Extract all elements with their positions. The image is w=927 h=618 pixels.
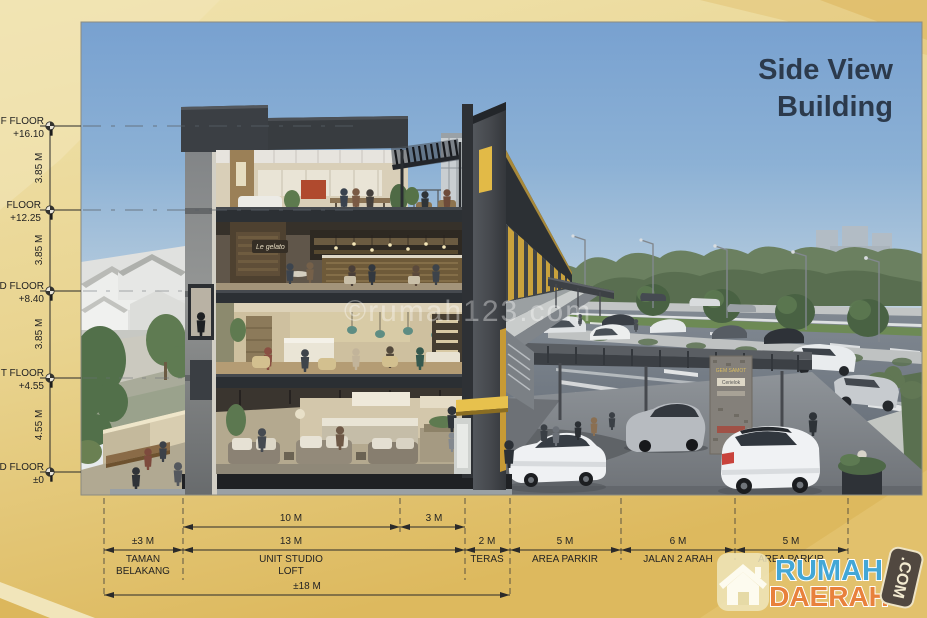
svg-text:D FLOOR: D FLOOR <box>0 281 44 292</box>
svg-text:DAERAH: DAERAH <box>769 581 889 612</box>
svg-text:±0: ±0 <box>33 475 44 486</box>
svg-text:3 M: 3 M <box>426 513 443 524</box>
svg-text:3.85 M: 3.85 M <box>34 319 45 350</box>
svg-text:TAMAN: TAMAN <box>126 554 160 565</box>
svg-text:Cerielok: Cerielok <box>722 380 741 386</box>
svg-text:F FLOOR: F FLOOR <box>1 116 44 127</box>
svg-text:±3 M: ±3 M <box>132 536 154 547</box>
svg-text:5 M: 5 M <box>557 536 574 547</box>
svg-text:10 M: 10 M <box>280 513 302 524</box>
svg-text:+4.55: +4.55 <box>19 381 45 392</box>
svg-text:±18 M: ±18 M <box>293 581 321 592</box>
svg-text:3.85 M: 3.85 M <box>34 153 45 184</box>
svg-text:AREA PARKIR: AREA PARKIR <box>532 554 598 565</box>
svg-text:+16.10: +16.10 <box>13 129 44 140</box>
svg-text:JALAN 2 ARAH: JALAN 2 ARAH <box>643 554 712 565</box>
svg-text:3.85 M: 3.85 M <box>34 235 45 266</box>
svg-text:LOFT: LOFT <box>278 566 304 577</box>
svg-text:GEM SAMOT: GEM SAMOT <box>716 368 747 374</box>
svg-text:13 M: 13 M <box>280 536 302 547</box>
svg-text:2 M: 2 M <box>479 536 496 547</box>
svg-text:5 M: 5 M <box>783 536 800 547</box>
svg-text:D FLOOR: D FLOOR <box>0 462 44 473</box>
svg-text:©rumah123.com: ©rumah123.com <box>344 295 592 328</box>
svg-text:Building: Building <box>777 91 893 123</box>
svg-text:Le gelato: Le gelato <box>256 244 285 251</box>
svg-text:+12.25: +12.25 <box>10 213 41 224</box>
svg-text:UNIT STUDIO: UNIT STUDIO <box>259 554 323 565</box>
svg-text:+8.40: +8.40 <box>19 294 45 305</box>
svg-text:Side View: Side View <box>758 54 893 86</box>
svg-text:4.55 M: 4.55 M <box>34 410 45 441</box>
svg-text:BELAKANG: BELAKANG <box>116 566 170 577</box>
svg-text:6 M: 6 M <box>670 536 687 547</box>
svg-text:T FLOOR: T FLOOR <box>1 368 44 379</box>
svg-text:FLOOR: FLOOR <box>7 200 41 211</box>
svg-text:TERAS: TERAS <box>470 554 504 565</box>
